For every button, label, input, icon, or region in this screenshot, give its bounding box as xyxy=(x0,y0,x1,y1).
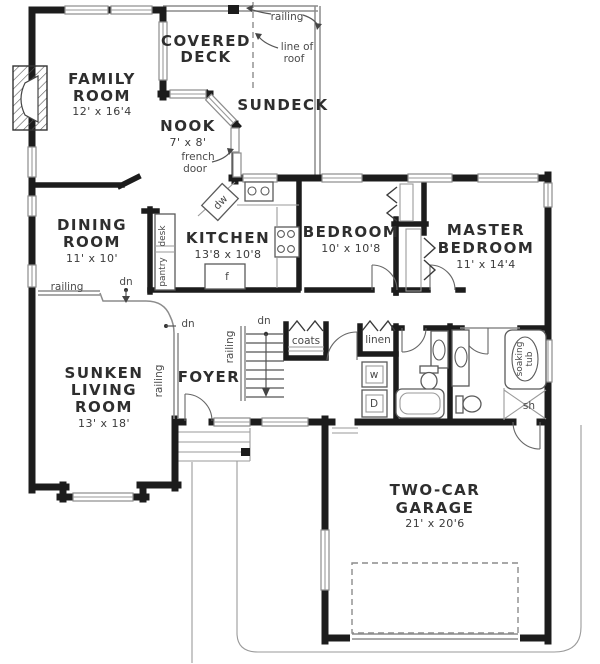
stairs xyxy=(241,326,284,401)
living-room-label-3: ROOM xyxy=(75,398,133,416)
main-bath-tub xyxy=(396,389,444,418)
soaking-tub: soaking tub xyxy=(505,330,546,389)
railing-label-stairs: railing xyxy=(224,331,236,364)
coats-bifold xyxy=(289,321,323,331)
ensuite-toilet xyxy=(456,396,481,413)
sundeck-label: SUNDECK xyxy=(237,96,328,114)
nook-dims: 7' x 8' xyxy=(169,136,206,149)
main-bath-toilet xyxy=(420,366,438,390)
master-bedroom-dims: 11' x 14'4 xyxy=(456,258,516,271)
main-bath-fixtures xyxy=(396,331,448,418)
kitchen-label: KITCHEN xyxy=(186,229,270,247)
main-bath-door xyxy=(402,328,426,352)
walkway-driveway-edge xyxy=(237,425,581,652)
dn-label-foyer: dn xyxy=(181,318,194,330)
front-door xyxy=(185,394,212,421)
desk-label: desk xyxy=(158,225,168,247)
washer-label: w xyxy=(370,369,379,381)
stair-treads xyxy=(246,334,284,397)
linen-bifold xyxy=(362,321,395,331)
living-room-dims: 13' x 18' xyxy=(78,417,130,430)
stair-railing xyxy=(241,326,245,401)
deck-railing-right xyxy=(315,6,320,176)
line-of-roof-label: line of xyxy=(281,41,314,53)
master-bedroom-label: MASTER xyxy=(447,221,525,239)
dn-label-stairs: dn xyxy=(257,315,270,327)
fireplace xyxy=(13,66,47,130)
soaking-tub-label: soaking xyxy=(515,342,525,377)
dn-label-dining: dn xyxy=(119,276,132,288)
site-lines xyxy=(172,425,581,663)
soaking-tub-label-2: tub xyxy=(525,351,535,366)
garage-rear-door xyxy=(513,422,540,449)
family-room-label-2: ROOM xyxy=(73,87,131,105)
pantry-label: pantry xyxy=(158,257,168,287)
kitchen-dims: 13'8 x 10'8 xyxy=(194,248,261,261)
dryer-label: D xyxy=(370,398,378,410)
deck-railings xyxy=(163,2,320,176)
railing-label-dining: railing xyxy=(51,281,84,293)
foyer-label: FOYER xyxy=(178,368,241,386)
linen-closet-label: linen xyxy=(365,334,391,346)
stove xyxy=(275,227,299,257)
bedroom-closet-bifold xyxy=(387,187,397,221)
floor-plan: dw f desk pantry w D xyxy=(0,0,600,664)
fridge-label: f xyxy=(225,271,229,283)
garage-door-opening xyxy=(350,631,520,644)
kitchen-sink xyxy=(245,182,273,201)
garage-label: TWO-CAR xyxy=(390,481,481,499)
master-closet-shelf xyxy=(406,229,421,291)
garage-features xyxy=(350,563,520,644)
bedroom-dims: 10' x 10'8 xyxy=(321,242,381,255)
covered-deck-label-2: DECK xyxy=(180,48,231,66)
french-door-label: french xyxy=(181,151,214,163)
family-room-label: FAMILY xyxy=(68,70,136,88)
living-room-label-2: LIVING xyxy=(71,381,137,399)
pantry-desk-cabinet: desk pantry xyxy=(155,214,175,290)
entry-steps xyxy=(172,428,250,461)
master-bedroom-label-2: BEDROOM xyxy=(438,239,535,257)
bedroom-closet-shelf xyxy=(400,184,413,221)
nook-label: NOOK xyxy=(160,117,216,135)
french-door xyxy=(231,128,241,177)
coats-closet-label: coats xyxy=(292,335,320,347)
step-edge-curve xyxy=(100,293,174,333)
garage-entry-step xyxy=(332,428,358,433)
garage-label-2: GARAGE xyxy=(396,499,475,517)
ensuite-fixtures: soaking tub sh xyxy=(452,330,546,420)
shower: sh xyxy=(504,388,546,420)
railing-label-living: railing xyxy=(153,365,165,398)
entry-post xyxy=(241,448,250,456)
dishwasher: dw xyxy=(202,184,239,221)
floor-plan-canvas: dw f desk pantry w D xyxy=(0,0,600,664)
stair-direction-arrow xyxy=(262,388,270,397)
dining-room-label-2: ROOM xyxy=(63,233,121,251)
coats-shelf xyxy=(288,347,324,351)
laundry: w D xyxy=(362,362,387,417)
fridge: f xyxy=(205,264,245,289)
french-door-label-2: door xyxy=(183,163,208,175)
dining-room-dims: 11' x 10' xyxy=(66,252,118,265)
family-room-dims: 12' x 16'4 xyxy=(72,105,132,118)
line-of-roof-label-2: roof xyxy=(284,53,305,65)
garage-dims: 21' x 20'6 xyxy=(405,517,465,530)
railing-label-deck: railing xyxy=(271,11,304,23)
living-room-label: SUNKEN xyxy=(65,364,144,382)
deck-post xyxy=(228,5,239,14)
garage-door-dashed-area xyxy=(352,563,518,633)
shower-label: sh xyxy=(523,400,535,412)
annotation-arrows xyxy=(212,5,322,162)
dining-room-label: DINING xyxy=(57,216,127,234)
dining-dn-arrow xyxy=(122,296,130,303)
laundry-door xyxy=(327,332,357,360)
bedroom-label: BEDROOM xyxy=(303,223,400,241)
